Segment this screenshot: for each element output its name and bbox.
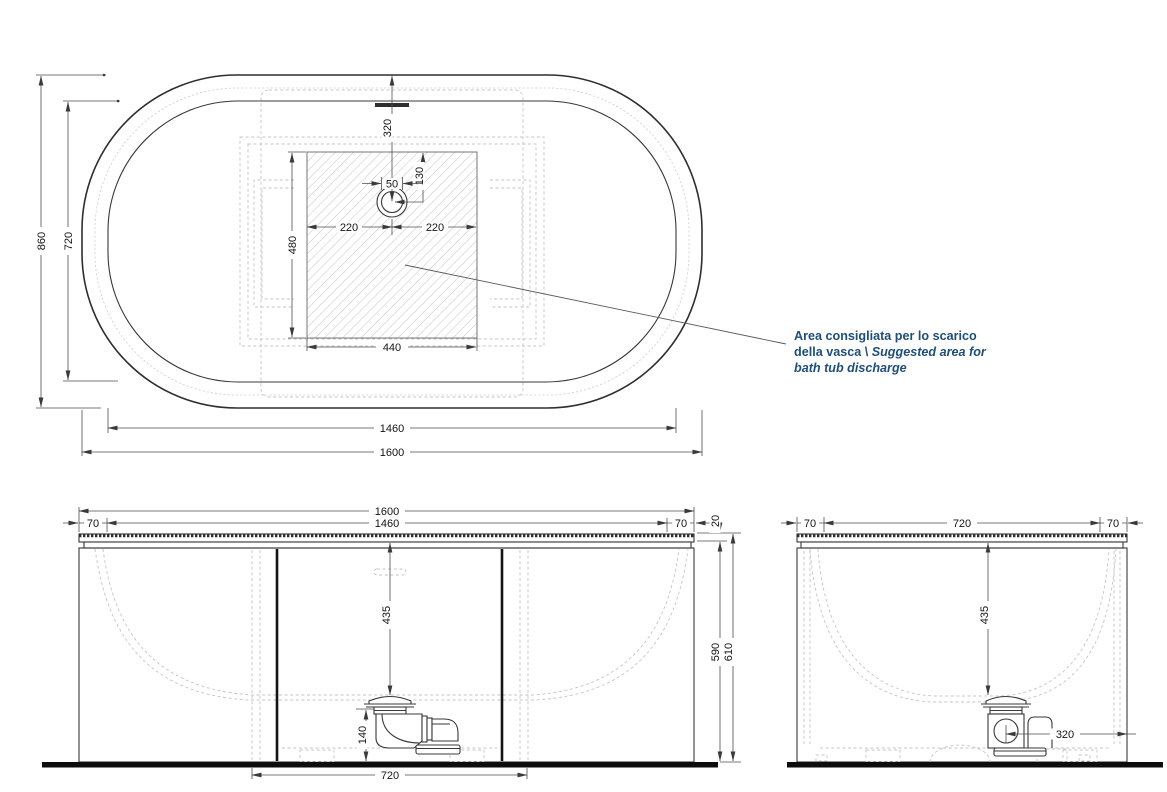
technical-drawing-page: 860 720 1460 1600 320 130 50 xyxy=(0,0,1167,792)
dim-label-435-side: 435 xyxy=(979,606,991,624)
side-foot-right xyxy=(1063,750,1097,762)
dim-label-220-right: 220 xyxy=(426,222,444,234)
top-view: 860 720 1460 1600 320 130 50 xyxy=(36,74,703,459)
dim-label-220-left: 220 xyxy=(340,222,358,234)
side-floor-line xyxy=(787,762,1163,768)
side-foot-left xyxy=(866,750,900,762)
dim-label-720-side: 720 xyxy=(953,518,971,530)
dim-label-320-side: 320 xyxy=(1056,729,1074,741)
dim-label-590: 590 xyxy=(710,643,722,661)
dim-label-140: 140 xyxy=(357,726,369,744)
annotation-line-2-italian: della vasca \ xyxy=(794,345,872,359)
right-bracket-hidden xyxy=(490,180,530,307)
dim-label-435-front: 435 xyxy=(381,606,393,624)
annotation-line-3: bath tub discharge xyxy=(794,361,907,375)
dim-label-70-front-right: 70 xyxy=(675,518,687,530)
front-elevation: 1600 1460 70 70 435 140 720 xyxy=(42,506,741,783)
side-elevation: 70 720 70 435 320 xyxy=(781,517,1163,768)
dim-label-130: 130 xyxy=(414,167,426,185)
dim-label-50: 50 xyxy=(386,179,398,191)
side-rim-strip xyxy=(801,542,1123,548)
dim-label-1600-plan: 1600 xyxy=(380,447,404,459)
front-floor-line xyxy=(42,762,718,768)
dim-label-860: 860 xyxy=(36,232,48,250)
front-drain-trap xyxy=(364,697,460,755)
dim-label-720-front: 720 xyxy=(381,770,399,782)
front-foot-left xyxy=(300,750,334,762)
dim-label-320-plan: 320 xyxy=(382,119,394,137)
side-basin-curve-inner xyxy=(818,549,1109,696)
dim-label-480: 480 xyxy=(287,236,299,254)
dim-label-70-front-left: 70 xyxy=(87,518,99,530)
side-basin-curve-outer xyxy=(810,549,1116,702)
annotation-line-2: della vasca \ Suggested area for xyxy=(794,345,987,359)
discharge-annotation: Area consigliata per lo scarico della va… xyxy=(405,265,987,375)
dim-label-1460-plan: 1460 xyxy=(380,423,404,435)
dim-label-20: 20 xyxy=(710,515,722,527)
annotation-line-2-english: Suggested area for xyxy=(872,345,987,359)
dim-label-1600-front: 1600 xyxy=(375,506,399,518)
front-rim-strip xyxy=(84,542,691,548)
dim-label-720-plan: 720 xyxy=(63,232,75,250)
dim-label-1460-front: 1460 xyxy=(375,518,399,530)
annotation-line-1: Area consigliata per lo scarico xyxy=(794,329,977,343)
side-drain-trap xyxy=(981,697,1052,757)
bathtub-dimension-drawing: 860 720 1460 1600 320 130 50 xyxy=(0,0,1167,792)
dim-label-70-side-left: 70 xyxy=(804,518,816,530)
dim-label-610: 610 xyxy=(723,643,735,661)
dim-label-440: 440 xyxy=(383,342,401,354)
dim-label-70-side-right: 70 xyxy=(1107,518,1119,530)
